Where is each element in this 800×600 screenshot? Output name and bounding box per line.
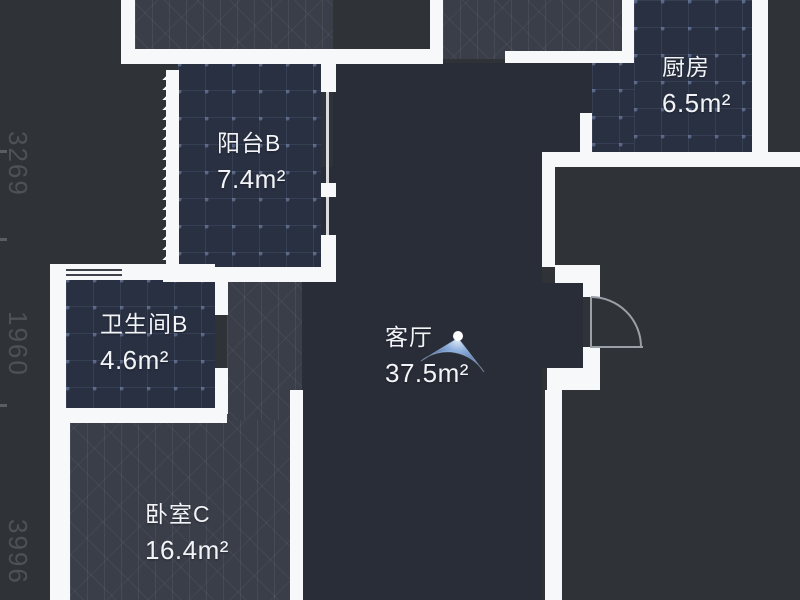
window-symbol xyxy=(326,92,329,235)
room-area: 7.4m² xyxy=(217,166,286,192)
dimension-label-right-clipped: 350 xyxy=(793,188,800,244)
dimension-label-left: 3996 xyxy=(2,519,33,583)
window-mullion xyxy=(321,183,336,197)
room-bedroom-top-left-floor xyxy=(135,0,333,49)
wall xyxy=(50,413,70,600)
room-kitchen-floor xyxy=(592,62,634,153)
wall xyxy=(321,52,336,92)
dimension-tick xyxy=(0,238,7,241)
room-label-kitchen: 厨房 6.5m² xyxy=(662,56,731,116)
room-area: 4.6m² xyxy=(100,347,188,373)
room-name: 卫生间B xyxy=(100,313,188,336)
wall xyxy=(542,152,555,267)
dimension-tick xyxy=(0,404,7,407)
wall xyxy=(752,0,768,167)
dimension-tick xyxy=(0,150,7,153)
wall xyxy=(215,279,228,315)
wall xyxy=(430,0,443,64)
wall xyxy=(50,264,215,280)
room-name: 厨房 xyxy=(662,56,731,79)
room-area: 37.5m² xyxy=(385,360,469,386)
wall xyxy=(215,368,228,414)
room-name: 卧室C xyxy=(145,503,229,526)
room-name: 阳台B xyxy=(217,132,286,155)
room-name: 客厅 xyxy=(385,326,469,349)
dimension-label-left: 1960 xyxy=(2,311,33,383)
window-symbol xyxy=(66,269,122,271)
wall xyxy=(121,49,443,64)
door-arc-icon xyxy=(585,292,649,354)
wall xyxy=(580,113,592,167)
dimension-label-right-clipped: 325 xyxy=(793,500,800,550)
room-area: 6.5m² xyxy=(662,90,731,116)
dimension-label-left: 3269 xyxy=(2,131,33,201)
wall xyxy=(50,408,227,423)
room-label-bedroom-c: 卧室C 16.4m² xyxy=(145,503,229,563)
window-symbol xyxy=(66,274,122,276)
room-label-bathroom-b: 卫生间B 4.6m² xyxy=(100,313,188,373)
wall xyxy=(555,265,600,283)
living-room-floor xyxy=(542,283,583,368)
room-area: 16.4m² xyxy=(145,537,229,563)
dimension-label-right-clipped: 6100 xyxy=(793,22,800,112)
wall xyxy=(545,390,562,600)
wall xyxy=(505,51,634,63)
accordion-door-frame xyxy=(166,70,179,267)
wall xyxy=(547,368,600,390)
floor-plan: 阳台B 7.4m² 厨房 6.5m² 卫生间B 4.6m² 客厅 37.5m² … xyxy=(0,0,800,600)
room-label-balcony-b: 阳台B 7.4m² xyxy=(217,132,286,192)
wall xyxy=(290,390,303,600)
room-label-living: 客厅 37.5m² xyxy=(385,326,469,386)
wall xyxy=(50,264,66,410)
